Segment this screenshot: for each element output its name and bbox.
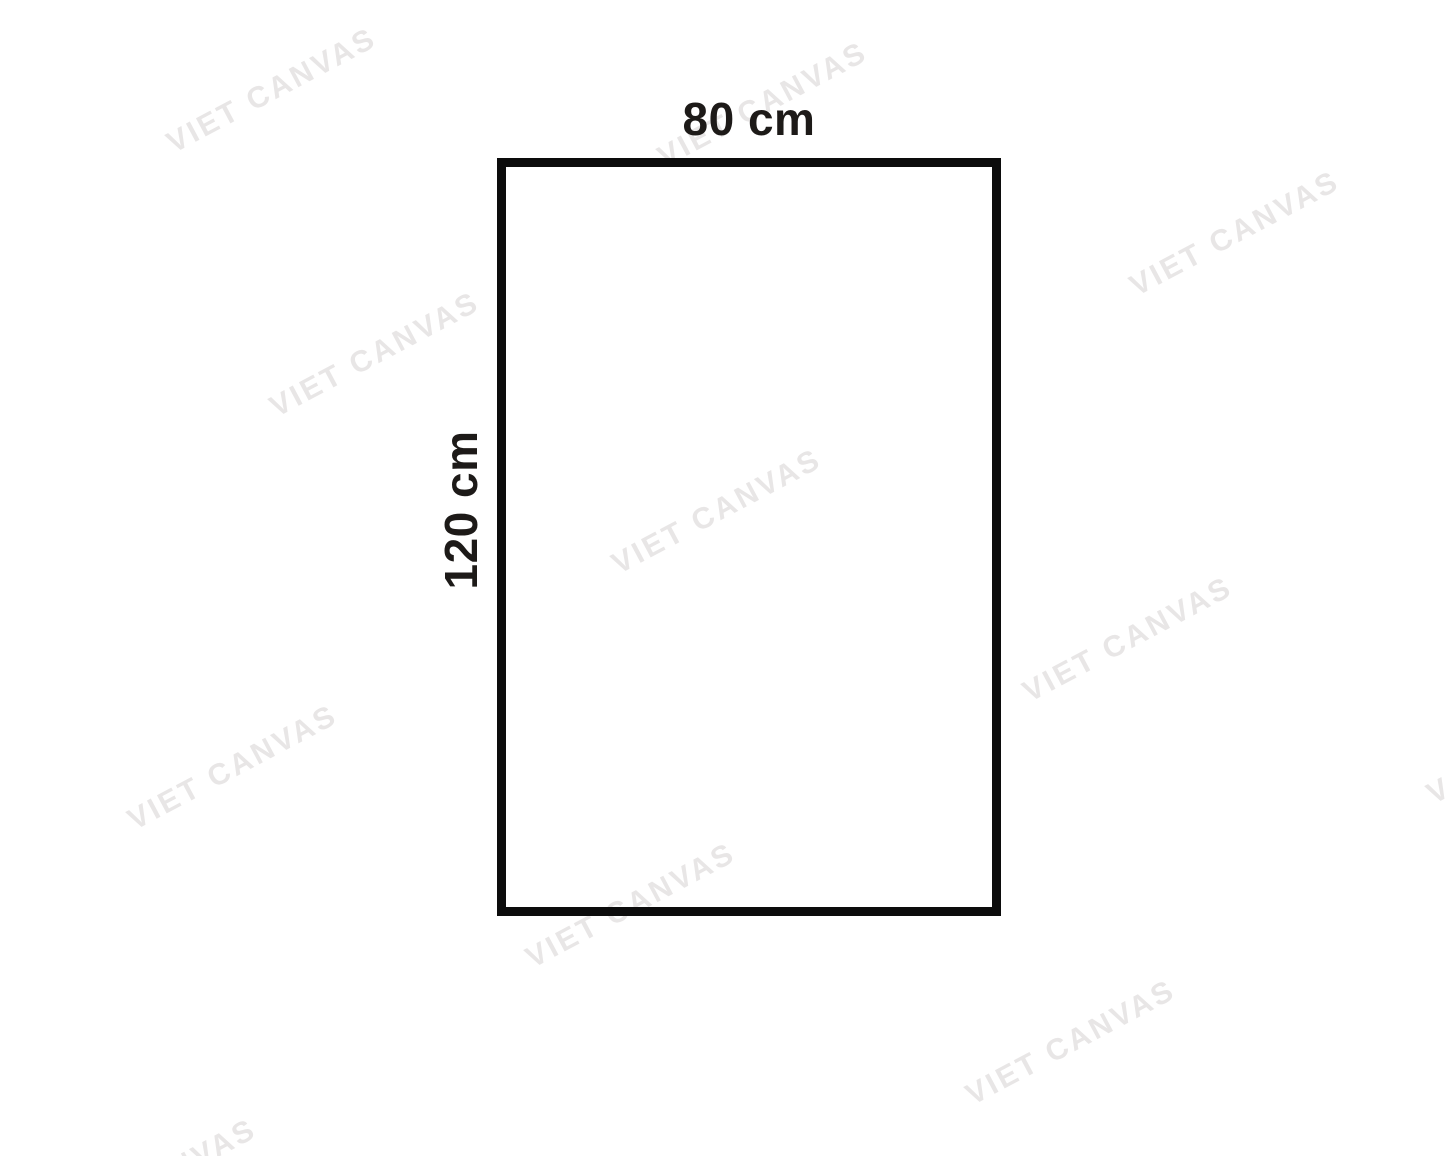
- canvas-size-diagram: VIET CANVASVIET CANVASVIET CANVASVIET CA…: [0, 0, 1445, 1156]
- watermark-text: VIET CANVAS: [960, 973, 1181, 1112]
- watermark-text: VIET CANVAS: [122, 698, 343, 837]
- watermark-text: VIET CANVAS: [1017, 570, 1238, 709]
- width-dimension-label: 80 cm: [497, 92, 1001, 146]
- height-dimension-label: 120 cm: [434, 430, 488, 589]
- watermark-text: VIET CANVAS: [1124, 164, 1345, 303]
- watermark-text: VIET CANVAS: [161, 21, 382, 160]
- watermark-text: VIET CANVAS: [1421, 672, 1445, 811]
- watermark-text: VIET CANVAS: [41, 1112, 262, 1156]
- watermark-text: VIET CANVAS: [264, 285, 485, 424]
- canvas-rectangle: [497, 158, 1001, 916]
